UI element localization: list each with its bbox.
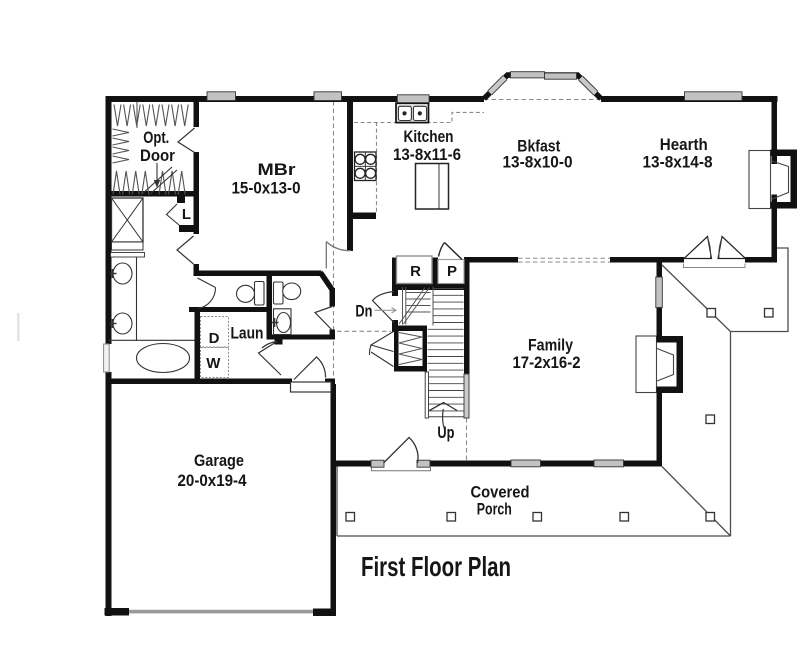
svg-text:17-2x16-2: 17-2x16-2 [513,354,581,372]
svg-text:15-0x13-0: 15-0x13-0 [232,180,301,198]
svg-text:R: R [410,263,421,280]
svg-text:D: D [209,330,220,347]
svg-text:Dn: Dn [355,303,372,321]
svg-text:MBr: MBr [258,161,297,179]
svg-text:13-8x10-0: 13-8x10-0 [503,154,573,172]
svg-text:P: P [447,263,457,280]
svg-text:W: W [206,355,221,372]
svg-text:L: L [182,206,191,223]
svg-text:Up: Up [437,424,454,442]
svg-text:13-8x11-6: 13-8x11-6 [393,146,461,164]
svg-text:Kitchen: Kitchen [404,128,454,146]
svg-text:20-0x19-4: 20-0x19-4 [178,472,248,490]
svg-text:Garage: Garage [194,452,244,470]
svg-text:Covered: Covered [471,484,530,502]
svg-text:Door: Door [140,147,176,165]
svg-text:Laun: Laun [231,325,264,343]
svg-text:13-8x14-8: 13-8x14-8 [643,154,713,172]
svg-text:Family: Family [528,337,574,355]
svg-text:Opt.: Opt. [143,129,169,147]
svg-text:Hearth: Hearth [660,136,708,154]
svg-text:Porch: Porch [477,501,512,519]
svg-text:First Floor Plan: First Floor Plan [361,551,511,582]
